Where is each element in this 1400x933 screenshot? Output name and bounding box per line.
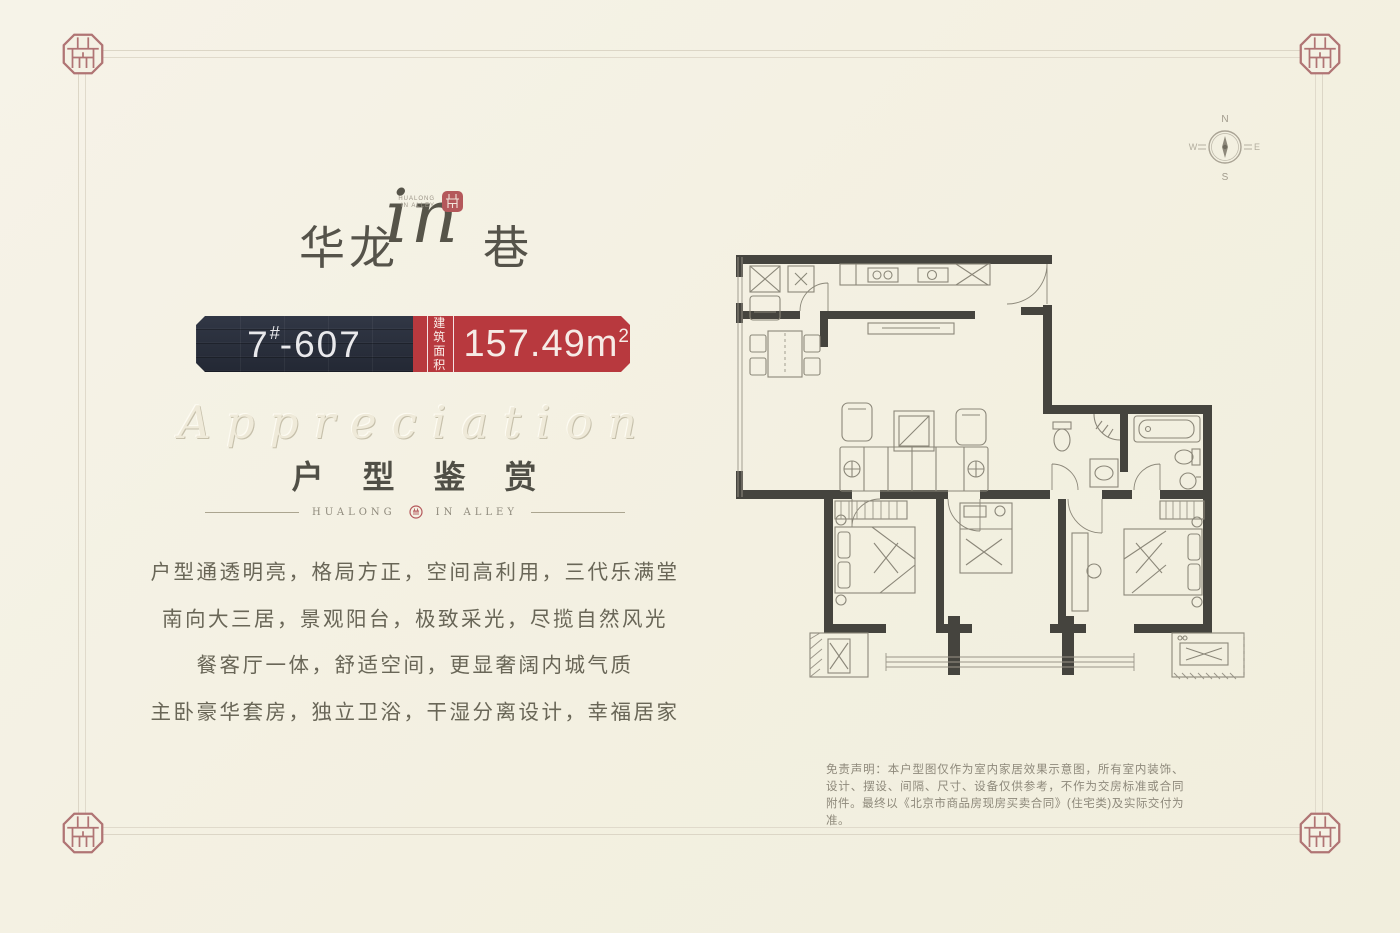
compass-north-label: N [1221,114,1228,125]
divider-seal-icon [409,505,423,519]
floorplan-poster: N E S W 华龙 in HUALONGIN ALLEY 巷 7#-607 建… [0,0,1400,933]
floor-plan [722,243,1257,703]
floor-plan-balconies [810,633,1244,679]
section-divider: HUALONG IN ALLEY [190,505,640,519]
logo-xiang-text: 巷 [483,212,533,278]
logo-micro-text: HUALONGIN ALLEY [379,196,435,210]
description-line: 主卧豪华套房，独立卫浴，干湿分离设计，幸福居家 [140,690,690,737]
area-label: 建筑面积 [427,312,454,376]
appreciation-script: Appreciation [150,396,680,449]
corner-ornament-icon [1299,812,1341,854]
compass-west-label: W [1189,142,1198,152]
floor-plan-bedrooms [835,501,1204,611]
floor-plan-walls [736,255,1212,675]
divider-line [205,512,299,513]
divider-inalley-text: IN ALLEY [436,507,518,518]
unit-number-plate: 7#-607 [196,316,413,372]
area-value: 157.49m2 [464,323,630,366]
corner-ornament-icon [62,812,104,854]
floor-plan-living [840,323,988,491]
logo-seal-icon [441,190,464,218]
description-line: 餐客厅一体，舒适空间，更显奢阔内城气质 [140,643,690,690]
description-line: 南向大三居，景观阳台，极致采光，尽揽自然风光 [140,597,690,644]
divider-hualong-text: HUALONG [312,507,396,518]
divider-line [531,512,625,513]
area-plate: 建筑面积 157.49m2 [413,316,630,372]
section-title: 户 型 鉴 赏 [150,452,680,498]
corner-ornament-icon [1299,33,1341,75]
description-block: 户型通透明亮，格局方正，空间高利用，三代乐满堂 南向大三居，景观阳台，极致采光，… [140,550,690,736]
compass-east-label: E [1254,142,1260,152]
brand-logo: 华龙 in HUALONGIN ALLEY 巷 [283,190,563,274]
compass-icon: N E S W [1184,105,1266,187]
unit-area-badge: 7#-607 建筑面积 157.49m2 [196,316,630,372]
floor-plan-dining [750,331,820,377]
corner-ornament-icon [62,33,104,75]
description-line: 户型通透明亮，格局方正，空间高利用，三代乐满堂 [140,550,690,597]
logo-hualong-text: 华龙 [299,212,399,278]
compass-south-label: S [1222,172,1229,183]
disclaimer-text: 免责声明：本户型图仅作为室内家居效果示意图，所有室内装饰、设计、摆设、间隔、尺寸… [826,762,1184,830]
